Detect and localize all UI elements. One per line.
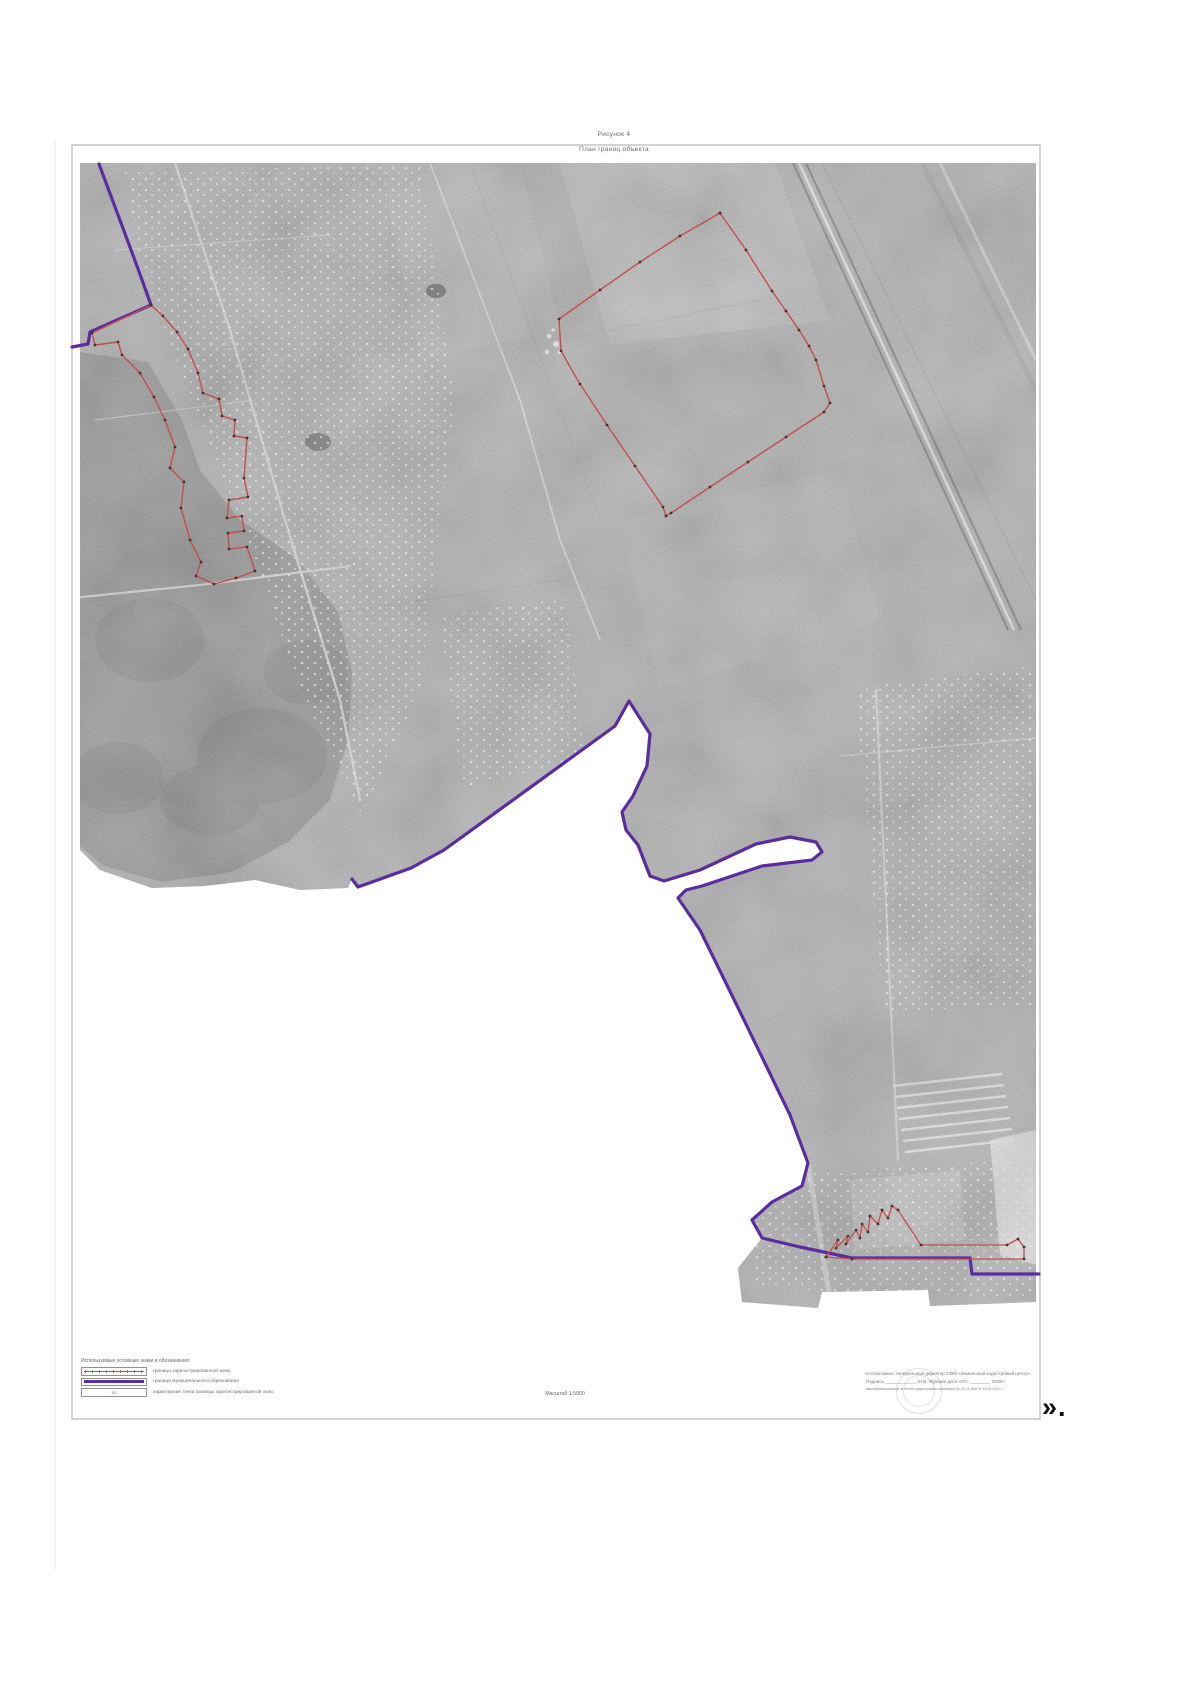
- approval-line: Подпись ____________ /Н.В. Жукова/ дата …: [866, 1378, 1034, 1386]
- approval-line: Согласовано: генеральный директор ООО «З…: [866, 1370, 1034, 1378]
- map-canvas: [0, 0, 1200, 1697]
- approval-block: Согласовано: генеральный директор ООО «З…: [866, 1370, 1034, 1393]
- legend-header: Используемые условные знаки и обозначени…: [81, 1358, 411, 1364]
- legend-item-label: граница муниципального образования: [153, 1379, 239, 1384]
- aerial-imagery: [72, 145, 1040, 1419]
- corner-mark: ».: [1042, 1392, 1067, 1423]
- municipal-boundary-swatch: [81, 1378, 147, 1387]
- legend-item-boundary-point: н1 характерная точка границы зарегистрир…: [81, 1388, 411, 1397]
- imagery-grain: [72, 145, 1040, 1419]
- legend: Используемые условные знаки и обозначени…: [81, 1358, 411, 1399]
- legend-item-label: граница зарегистрированной зоны: [153, 1369, 230, 1374]
- point-swatch: н1: [81, 1388, 147, 1397]
- legend-item-municipal-boundary: граница муниципального образования: [81, 1378, 411, 1387]
- legend-item-label: характерная точка границы зарегистрирова…: [153, 1390, 274, 1395]
- approval-line: квалификационный аттестат кадастрового и…: [866, 1386, 1034, 1393]
- document-page: Рисунок 4 План границ объекта: [0, 0, 1200, 1697]
- zone-boundary-swatch: [81, 1367, 147, 1376]
- scale-label: Масштаб 1:5000: [500, 1391, 630, 1397]
- legend-item-zone-boundary: граница зарегистрированной зоны: [81, 1367, 411, 1376]
